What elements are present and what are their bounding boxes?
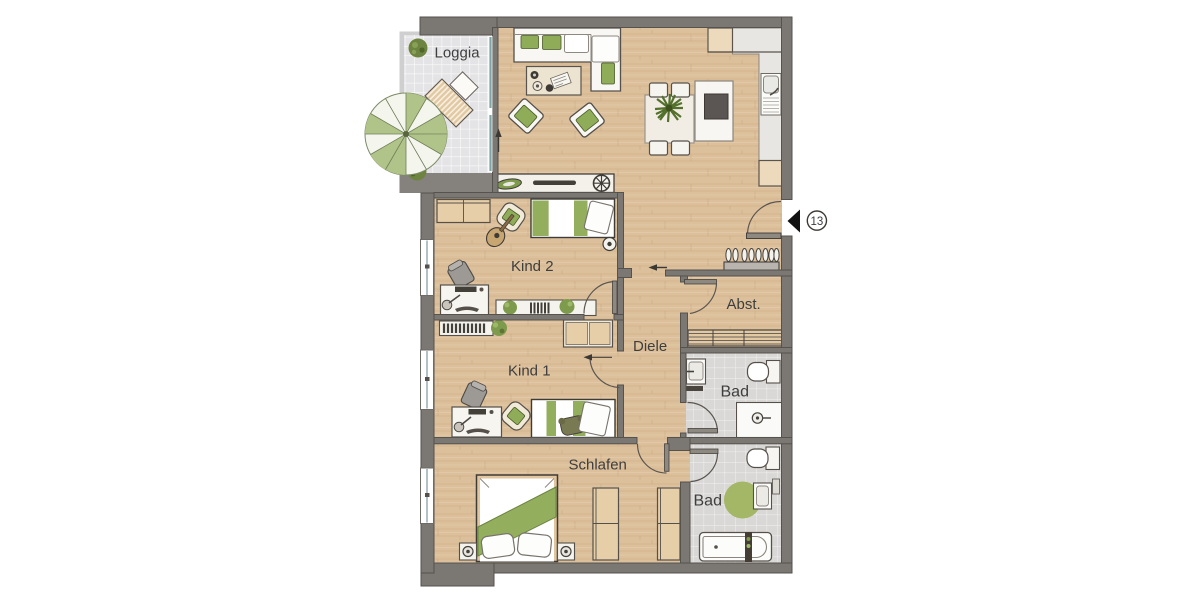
svg-text:Diele: Diele [633, 338, 667, 355]
svg-text:Abst.: Abst. [727, 296, 761, 313]
svg-text:Loggia: Loggia [435, 45, 481, 62]
svg-text:Bad: Bad [694, 493, 722, 510]
svg-text:13: 13 [811, 216, 824, 228]
svg-text:Bad: Bad [721, 384, 749, 401]
svg-text:Kind 1: Kind 1 [508, 363, 551, 380]
svg-text:Schlafen: Schlafen [569, 457, 627, 474]
svg-text:Kind 2: Kind 2 [511, 258, 554, 275]
